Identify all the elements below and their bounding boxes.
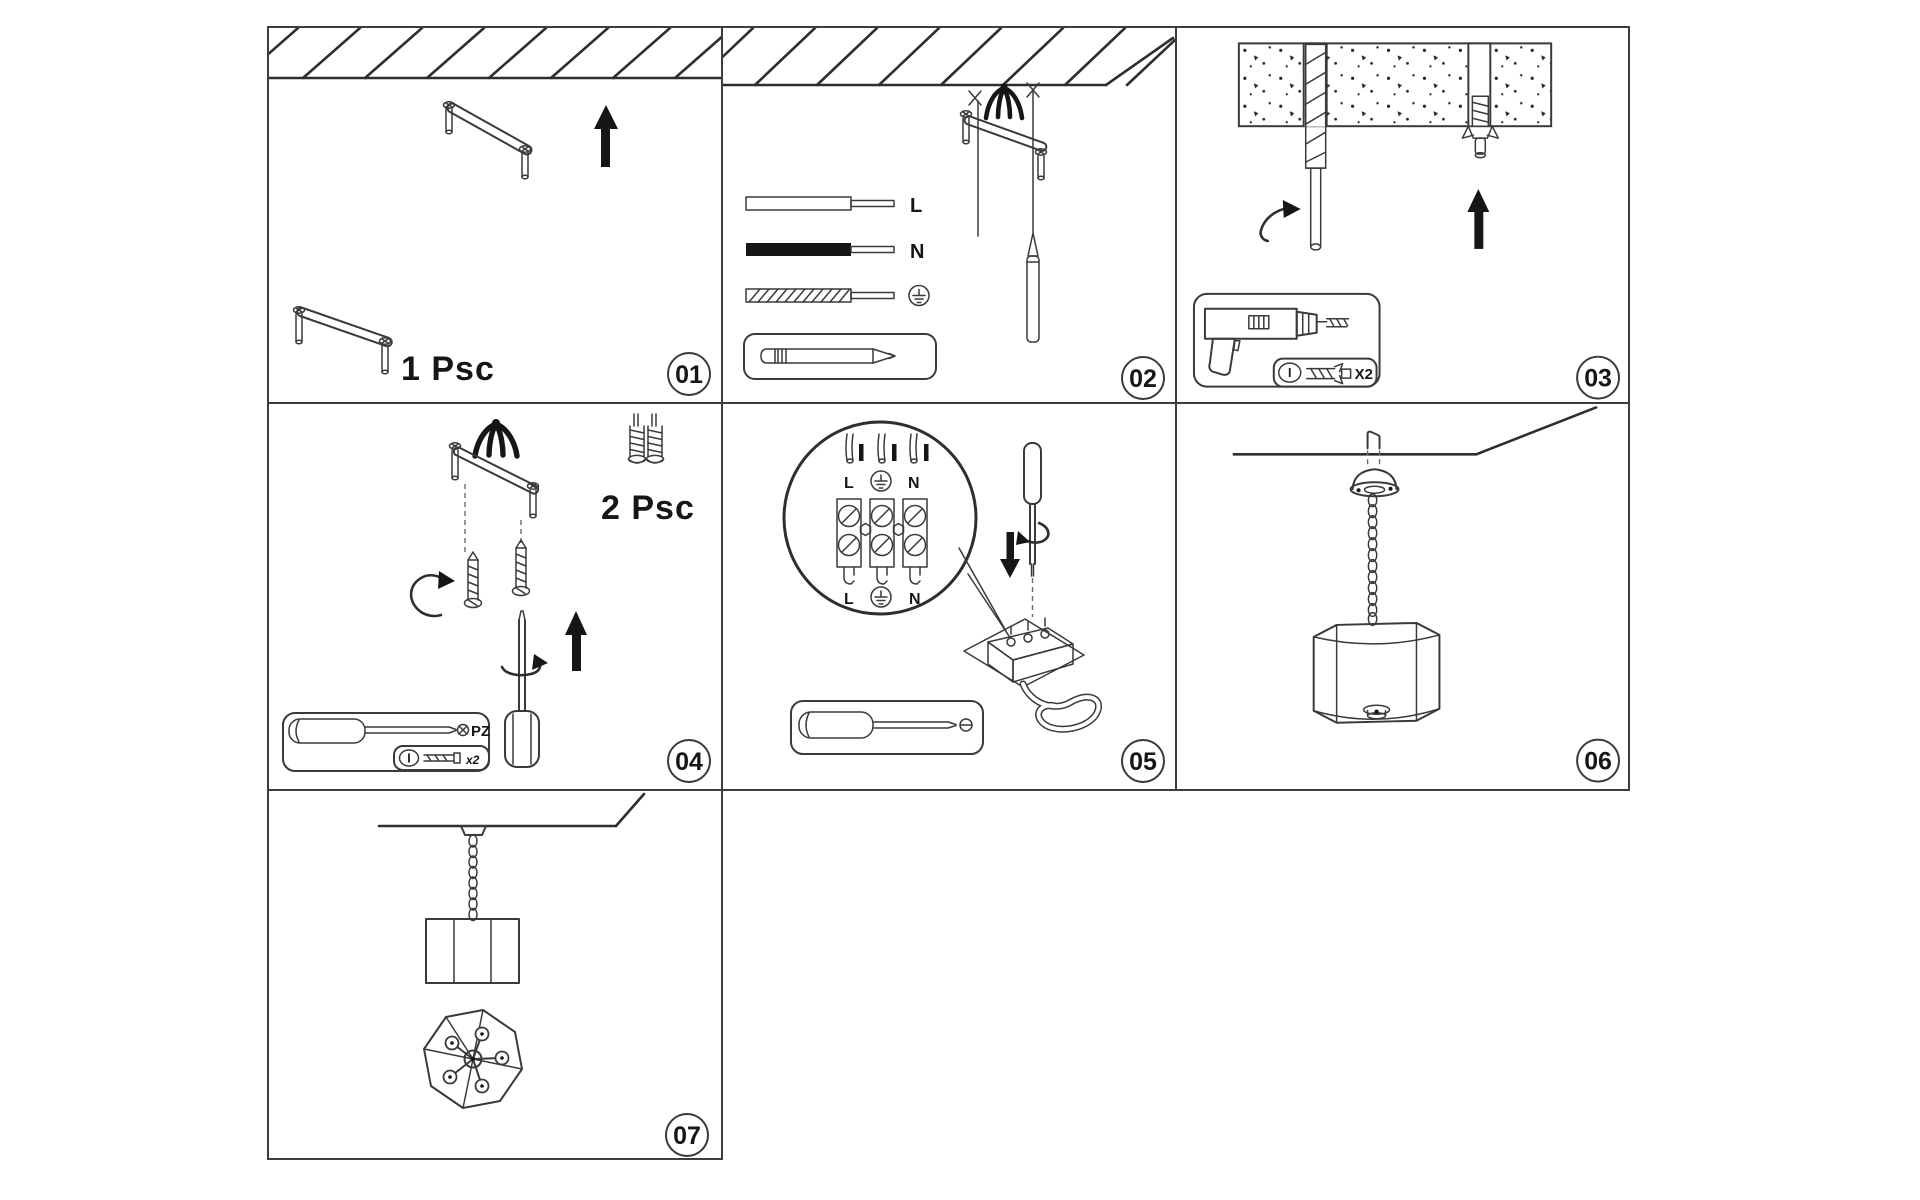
ceiling-hook <box>1368 432 1380 449</box>
quantity-label: 2 Psc <box>601 489 695 527</box>
step-badge: 05 <box>1122 740 1164 782</box>
screw-upward-right <box>513 540 530 596</box>
step-number: 07 <box>673 1122 701 1150</box>
wire-legend: L N <box>746 195 929 306</box>
screw-icon <box>647 414 664 463</box>
step-badge: 02 <box>1122 357 1164 399</box>
ceiling-hatch <box>723 28 1175 85</box>
ceiling-hook-claw-icon <box>475 419 517 456</box>
step-panel-02: L N <box>721 26 1177 404</box>
lamp-shade-front-view <box>426 919 519 983</box>
screw-icon <box>629 414 646 463</box>
terminal-block-top-view <box>837 499 927 567</box>
step-number: 02 <box>1129 365 1157 393</box>
anchor-quantity-box: I X2 <box>1274 359 1377 387</box>
earth-ground-icon <box>909 286 929 306</box>
earth-wire <box>746 286 929 306</box>
terminal-neutral-top: N <box>908 475 920 492</box>
live-wire: L <box>746 195 922 217</box>
hanging-chain <box>469 835 477 921</box>
earth-ground-icon <box>871 587 891 607</box>
bulb-icon <box>476 1028 489 1041</box>
terminal-block-3d <box>964 618 1084 687</box>
plumb-bob <box>1027 233 1039 342</box>
pencil-box <box>744 334 936 379</box>
up-arrow-icon <box>565 611 587 671</box>
screwdriver-downward <box>1024 443 1041 617</box>
step-number: 05 <box>1129 748 1157 776</box>
step-panel-01: 1 Psc 01 <box>267 26 723 404</box>
step-number: 06 <box>1584 748 1612 776</box>
ceiling-line <box>379 794 644 826</box>
ceiling-line <box>1234 407 1596 454</box>
incoming-wires <box>846 434 929 463</box>
lamp-shade-bottom-view <box>424 1010 522 1108</box>
terminal-magnifier: L N <box>784 422 976 614</box>
power-cable <box>1023 684 1099 729</box>
step-panel-03: I X2 03 <box>1175 26 1630 404</box>
pz-bit-icon <box>458 725 469 736</box>
ceiling-hook-claw-icon <box>986 84 1022 119</box>
earth-ground-icon <box>871 471 891 491</box>
hanging-chain <box>1368 494 1376 626</box>
up-arrow-icon <box>594 105 618 167</box>
live-label: L <box>910 195 922 217</box>
flat-bit-icon <box>960 719 972 731</box>
mounting-bracket-part <box>294 307 392 374</box>
step-panel-06: 06 <box>1175 402 1630 791</box>
bulb-icon <box>444 1071 457 1084</box>
alignment-dashed-lines <box>465 484 521 554</box>
step-panel-04: 2 Psc PZ I <box>267 402 723 791</box>
rotate-arrow-icon <box>1261 200 1301 241</box>
screw-icon-horizontal <box>424 753 460 763</box>
screwdriver-upward <box>505 611 539 767</box>
key-label: I <box>407 752 410 766</box>
quantity-label: 1 Psc <box>401 350 495 388</box>
ceiling-canopy <box>1351 469 1399 496</box>
anchor-count-label: X2 <box>1355 366 1373 383</box>
drill-icon <box>1205 309 1349 375</box>
lamp-socket <box>1364 705 1390 718</box>
screw-upward-left <box>465 552 482 608</box>
key-label: I <box>1288 366 1291 380</box>
screws-pair <box>629 414 664 463</box>
phillips-screwdriver-icon <box>289 719 456 743</box>
drill-toolbox: I X2 <box>1194 294 1380 387</box>
step-number: 01 <box>675 361 703 389</box>
step-badge: 07 <box>666 1114 708 1156</box>
instruction-sheet: 1 Psc 01 <box>0 0 1920 1200</box>
step-panel-07: 07 <box>267 789 723 1160</box>
bit-type-label: PZ <box>471 723 490 740</box>
screw-count-label: x2 <box>465 753 480 767</box>
concrete-ceiling-section <box>1239 43 1551 126</box>
flat-screwdriver-icon <box>799 712 956 738</box>
screw-quantity-box: I x2 <box>394 746 489 770</box>
rotate-arrow-small-icon <box>1016 523 1048 545</box>
bulb-icon <box>476 1080 489 1093</box>
step-badge: 03 <box>1577 357 1619 399</box>
mounting-bracket-at-ceiling <box>444 102 532 179</box>
terminal-live-bottom: L <box>844 591 854 608</box>
wall-anchor-icon <box>1307 364 1351 384</box>
outgoing-wire-hooks <box>844 567 920 584</box>
ceiling-canopy <box>461 826 486 835</box>
bulb-icon <box>496 1052 509 1065</box>
flat-screwdriver-toolbox <box>791 701 983 754</box>
rotate-arrow-icon <box>411 571 455 616</box>
up-arrow-icon <box>1467 189 1489 249</box>
step-number: 04 <box>675 748 703 776</box>
lamp-shade-drum <box>1314 623 1440 723</box>
bulb-icon <box>446 1037 459 1050</box>
step-badge: 06 <box>1577 740 1619 782</box>
step-badge: 01 <box>668 353 710 395</box>
step-panel-05: L N <box>721 402 1177 791</box>
step-number: 03 <box>1584 365 1612 393</box>
neutral-wire: N <box>746 241 924 263</box>
screwdriver-toolbox: PZ I x2 <box>283 713 490 771</box>
terminal-neutral-bottom: N <box>909 591 921 608</box>
neutral-label: N <box>910 241 924 263</box>
terminal-live-top: L <box>844 475 854 492</box>
mounting-bracket <box>450 443 539 518</box>
pencil-icon <box>761 349 895 363</box>
ceiling-hatch <box>269 28 721 78</box>
step-badge: 04 <box>668 740 710 782</box>
